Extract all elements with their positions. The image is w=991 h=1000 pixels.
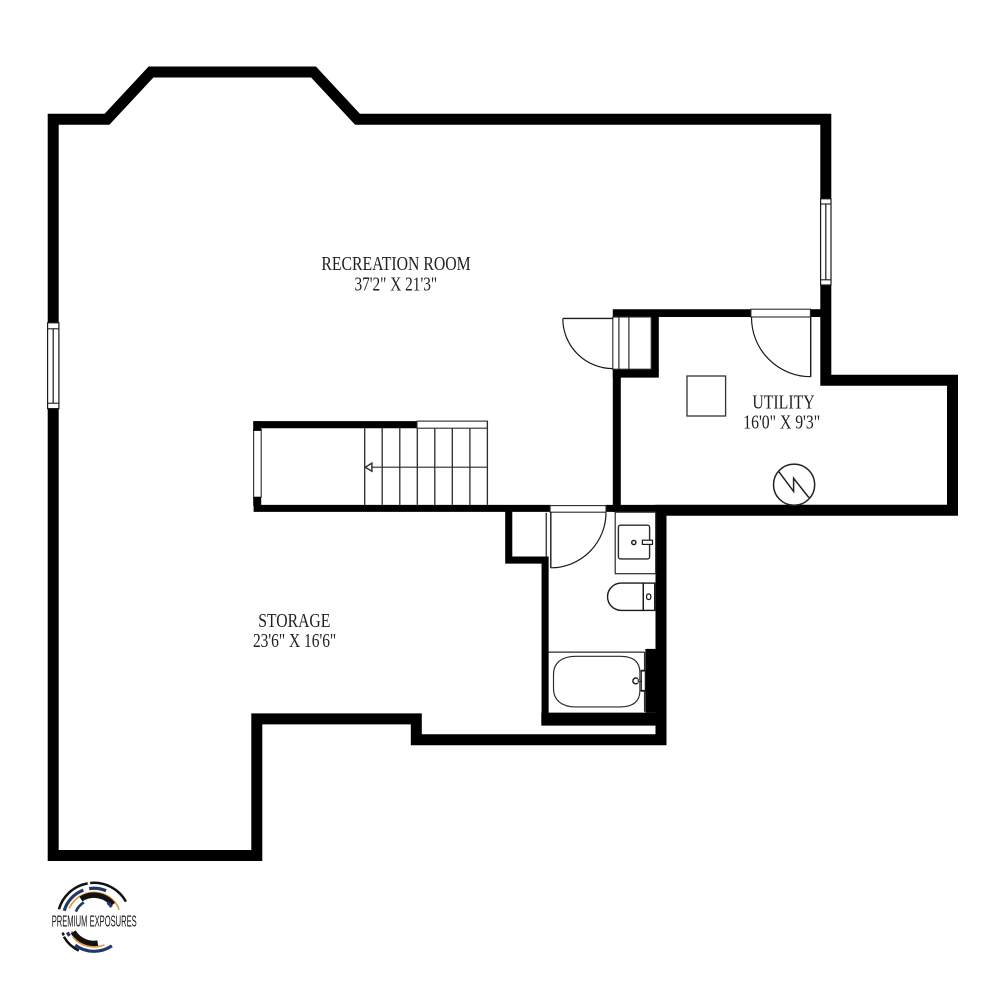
svg-text:STORAGE: STORAGE <box>258 611 330 632</box>
svg-text:PREMIUM EXPOSURES: PREMIUM EXPOSURES <box>52 912 137 930</box>
svg-text:UTILITY: UTILITY <box>752 393 814 414</box>
svg-text:37'2" X 21'3": 37'2" X 21'3" <box>354 274 437 295</box>
svg-text:23'6" X 16'6": 23'6" X 16'6" <box>253 631 336 652</box>
svg-text:16'0" X 9'3": 16'0" X 9'3" <box>743 412 820 433</box>
svg-text:RECREATION ROOM: RECREATION ROOM <box>321 254 470 275</box>
